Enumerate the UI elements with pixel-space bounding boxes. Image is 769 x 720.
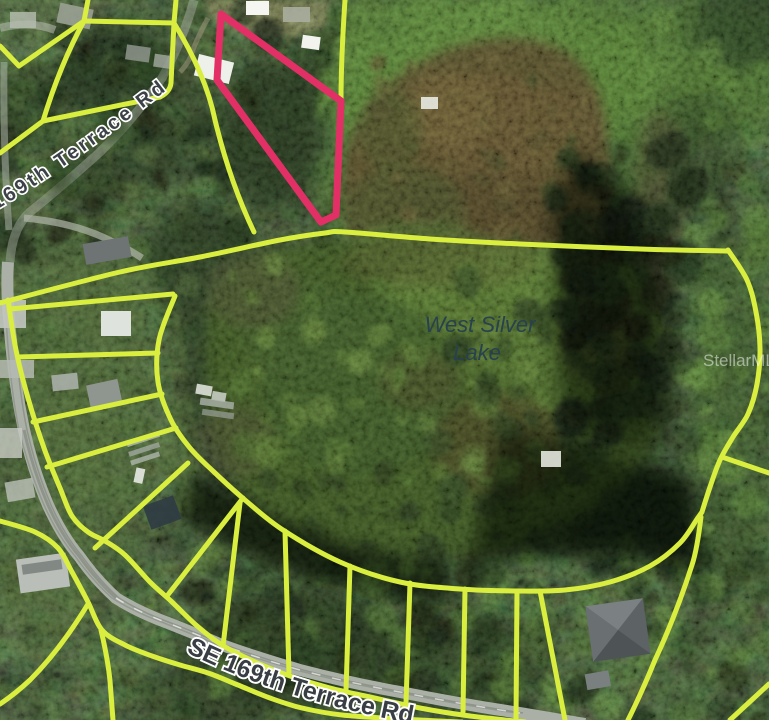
svg-text:Lake: Lake [453,340,501,365]
svg-text:StellarMLS: StellarMLS [703,351,769,370]
svg-text:West Silver: West Silver [425,312,538,337]
